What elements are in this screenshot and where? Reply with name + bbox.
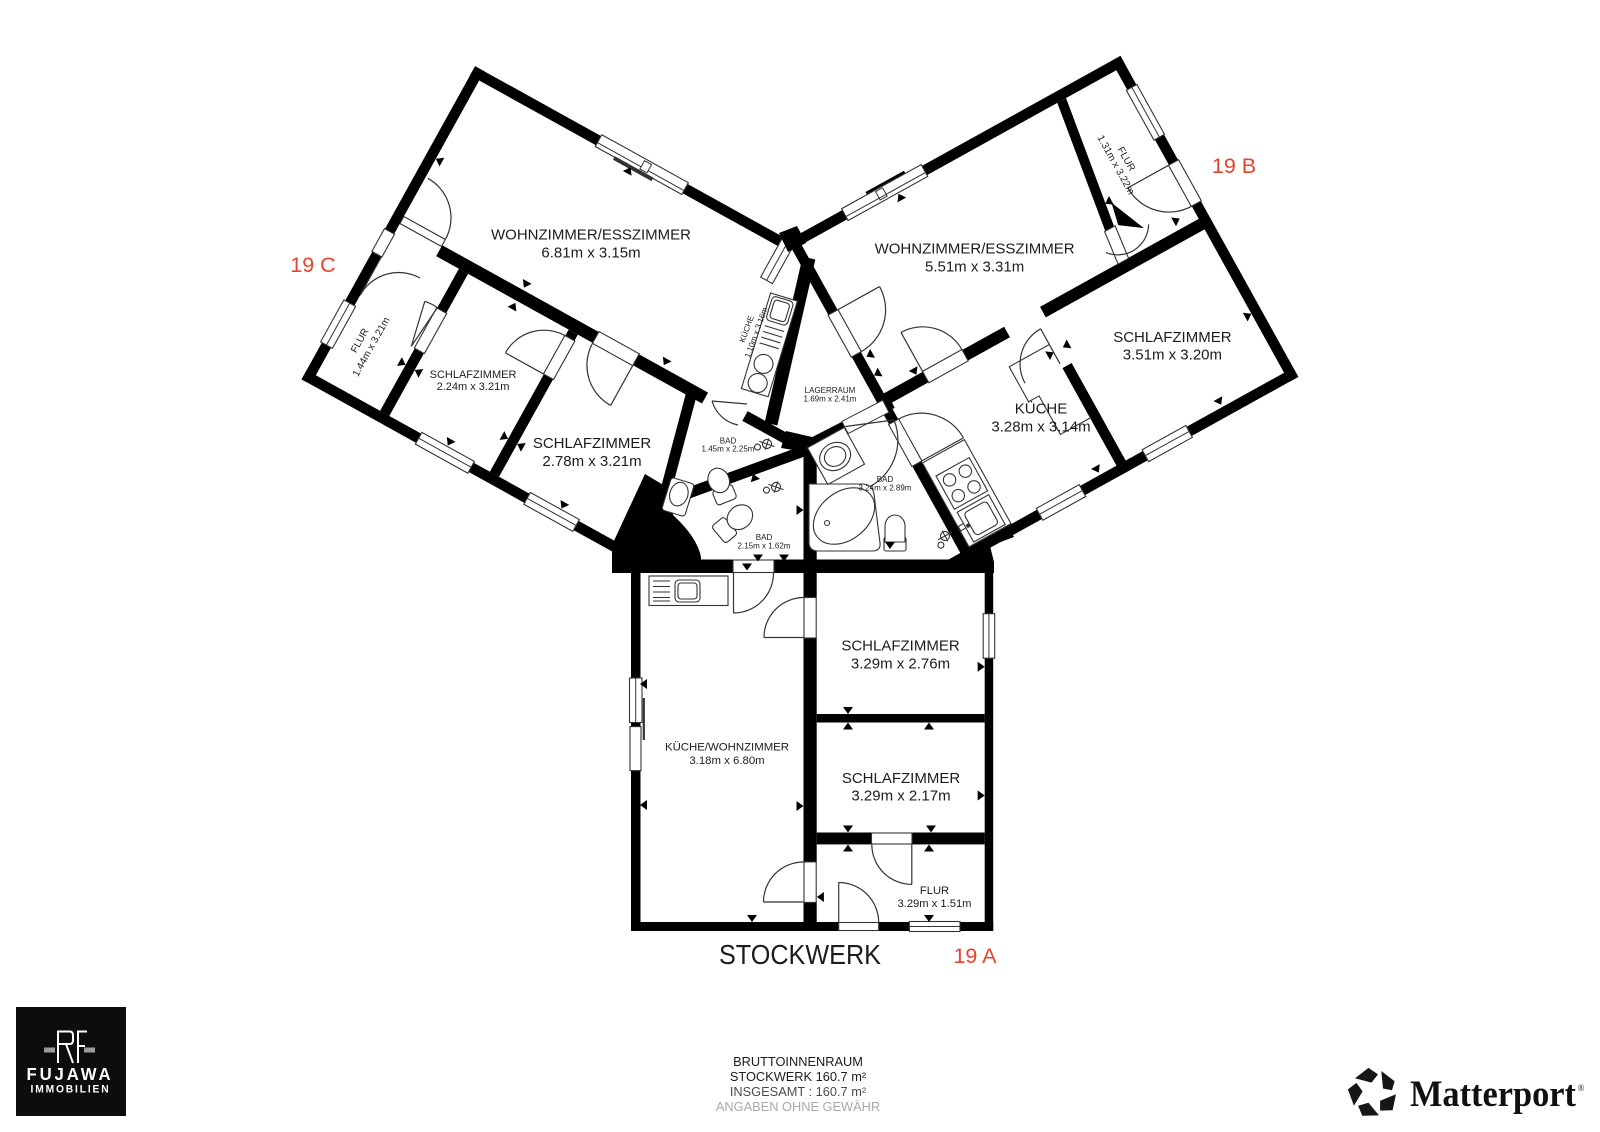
svg-text:ANGABEN OHNE GEWÄHR: ANGABEN OHNE GEWÄHR <box>716 1099 880 1114</box>
svg-text:3.29m x 1.51m: 3.29m x 1.51m <box>898 898 972 910</box>
svg-text:1.45m x 2.25m: 1.45m x 2.25m <box>702 445 755 454</box>
svg-text:2.78m x 3.21m: 2.78m x 3.21m <box>542 453 641 470</box>
svg-text:INSGESAMT : 160.7 m²: INSGESAMT : 160.7 m² <box>730 1084 867 1099</box>
svg-text:WOHNZIMMER/ESSZIMMER: WOHNZIMMER/ESSZIMMER <box>875 241 1075 258</box>
svg-text:SCHLAFZIMMER: SCHLAFZIMMER <box>841 638 960 655</box>
svg-text:2.15m x 1.62m: 2.15m x 1.62m <box>738 542 791 551</box>
svg-text:3.29m x 2.17m: 3.29m x 2.17m <box>851 788 950 805</box>
svg-text:19 A: 19 A <box>953 944 997 968</box>
svg-text:STOCKWERK 160.7 m²: STOCKWERK 160.7 m² <box>730 1069 867 1084</box>
svg-text:SCHLAFZIMMER: SCHLAFZIMMER <box>533 435 652 452</box>
svg-text:3.29m x 2.76m: 3.29m x 2.76m <box>851 656 950 673</box>
svg-text:®: ® <box>1578 1083 1585 1093</box>
svg-text:19 B: 19 B <box>1212 154 1256 178</box>
svg-text:STOCKWERK: STOCKWERK <box>719 939 882 970</box>
svg-text:6.81m x 3.15m: 6.81m x 3.15m <box>541 245 640 262</box>
svg-text:SCHLAFZIMMER: SCHLAFZIMMER <box>430 369 517 381</box>
svg-text:WOHNZIMMER/ESSZIMMER: WOHNZIMMER/ESSZIMMER <box>491 227 691 244</box>
svg-text:3.24m x 2.89m: 3.24m x 2.89m <box>859 484 912 493</box>
svg-text:3.18m x 6.80m: 3.18m x 6.80m <box>689 755 764 767</box>
svg-text:KÜCHE: KÜCHE <box>1015 400 1068 418</box>
svg-text:1.69m x 2.41m: 1.69m x 2.41m <box>804 395 857 404</box>
svg-text:3.28m x 3.14m: 3.28m x 3.14m <box>991 419 1090 436</box>
svg-text:3.51m x 3.20m: 3.51m x 3.20m <box>1123 347 1222 364</box>
svg-text:Matterport: Matterport <box>1410 1073 1576 1114</box>
svg-text:5.51m x 3.31m: 5.51m x 3.31m <box>925 259 1024 276</box>
svg-text:KÜCHE/WOHNZIMMER: KÜCHE/WOHNZIMMER <box>665 742 789 754</box>
svg-text:IMMOBILIEN: IMMOBILIEN <box>31 1084 111 1096</box>
svg-text:19 C: 19 C <box>290 253 335 277</box>
svg-text:FUJAWA: FUJAWA <box>27 1064 114 1084</box>
svg-text:BRUTTOINNENRAUM: BRUTTOINNENRAUM <box>733 1054 863 1069</box>
svg-text:FLUR: FLUR <box>920 885 949 897</box>
svg-text:2.24m x 3.21m: 2.24m x 3.21m <box>437 381 510 393</box>
svg-text:SCHLAFZIMMER: SCHLAFZIMMER <box>1113 329 1232 346</box>
svg-text:SCHLAFZIMMER: SCHLAFZIMMER <box>842 770 961 787</box>
